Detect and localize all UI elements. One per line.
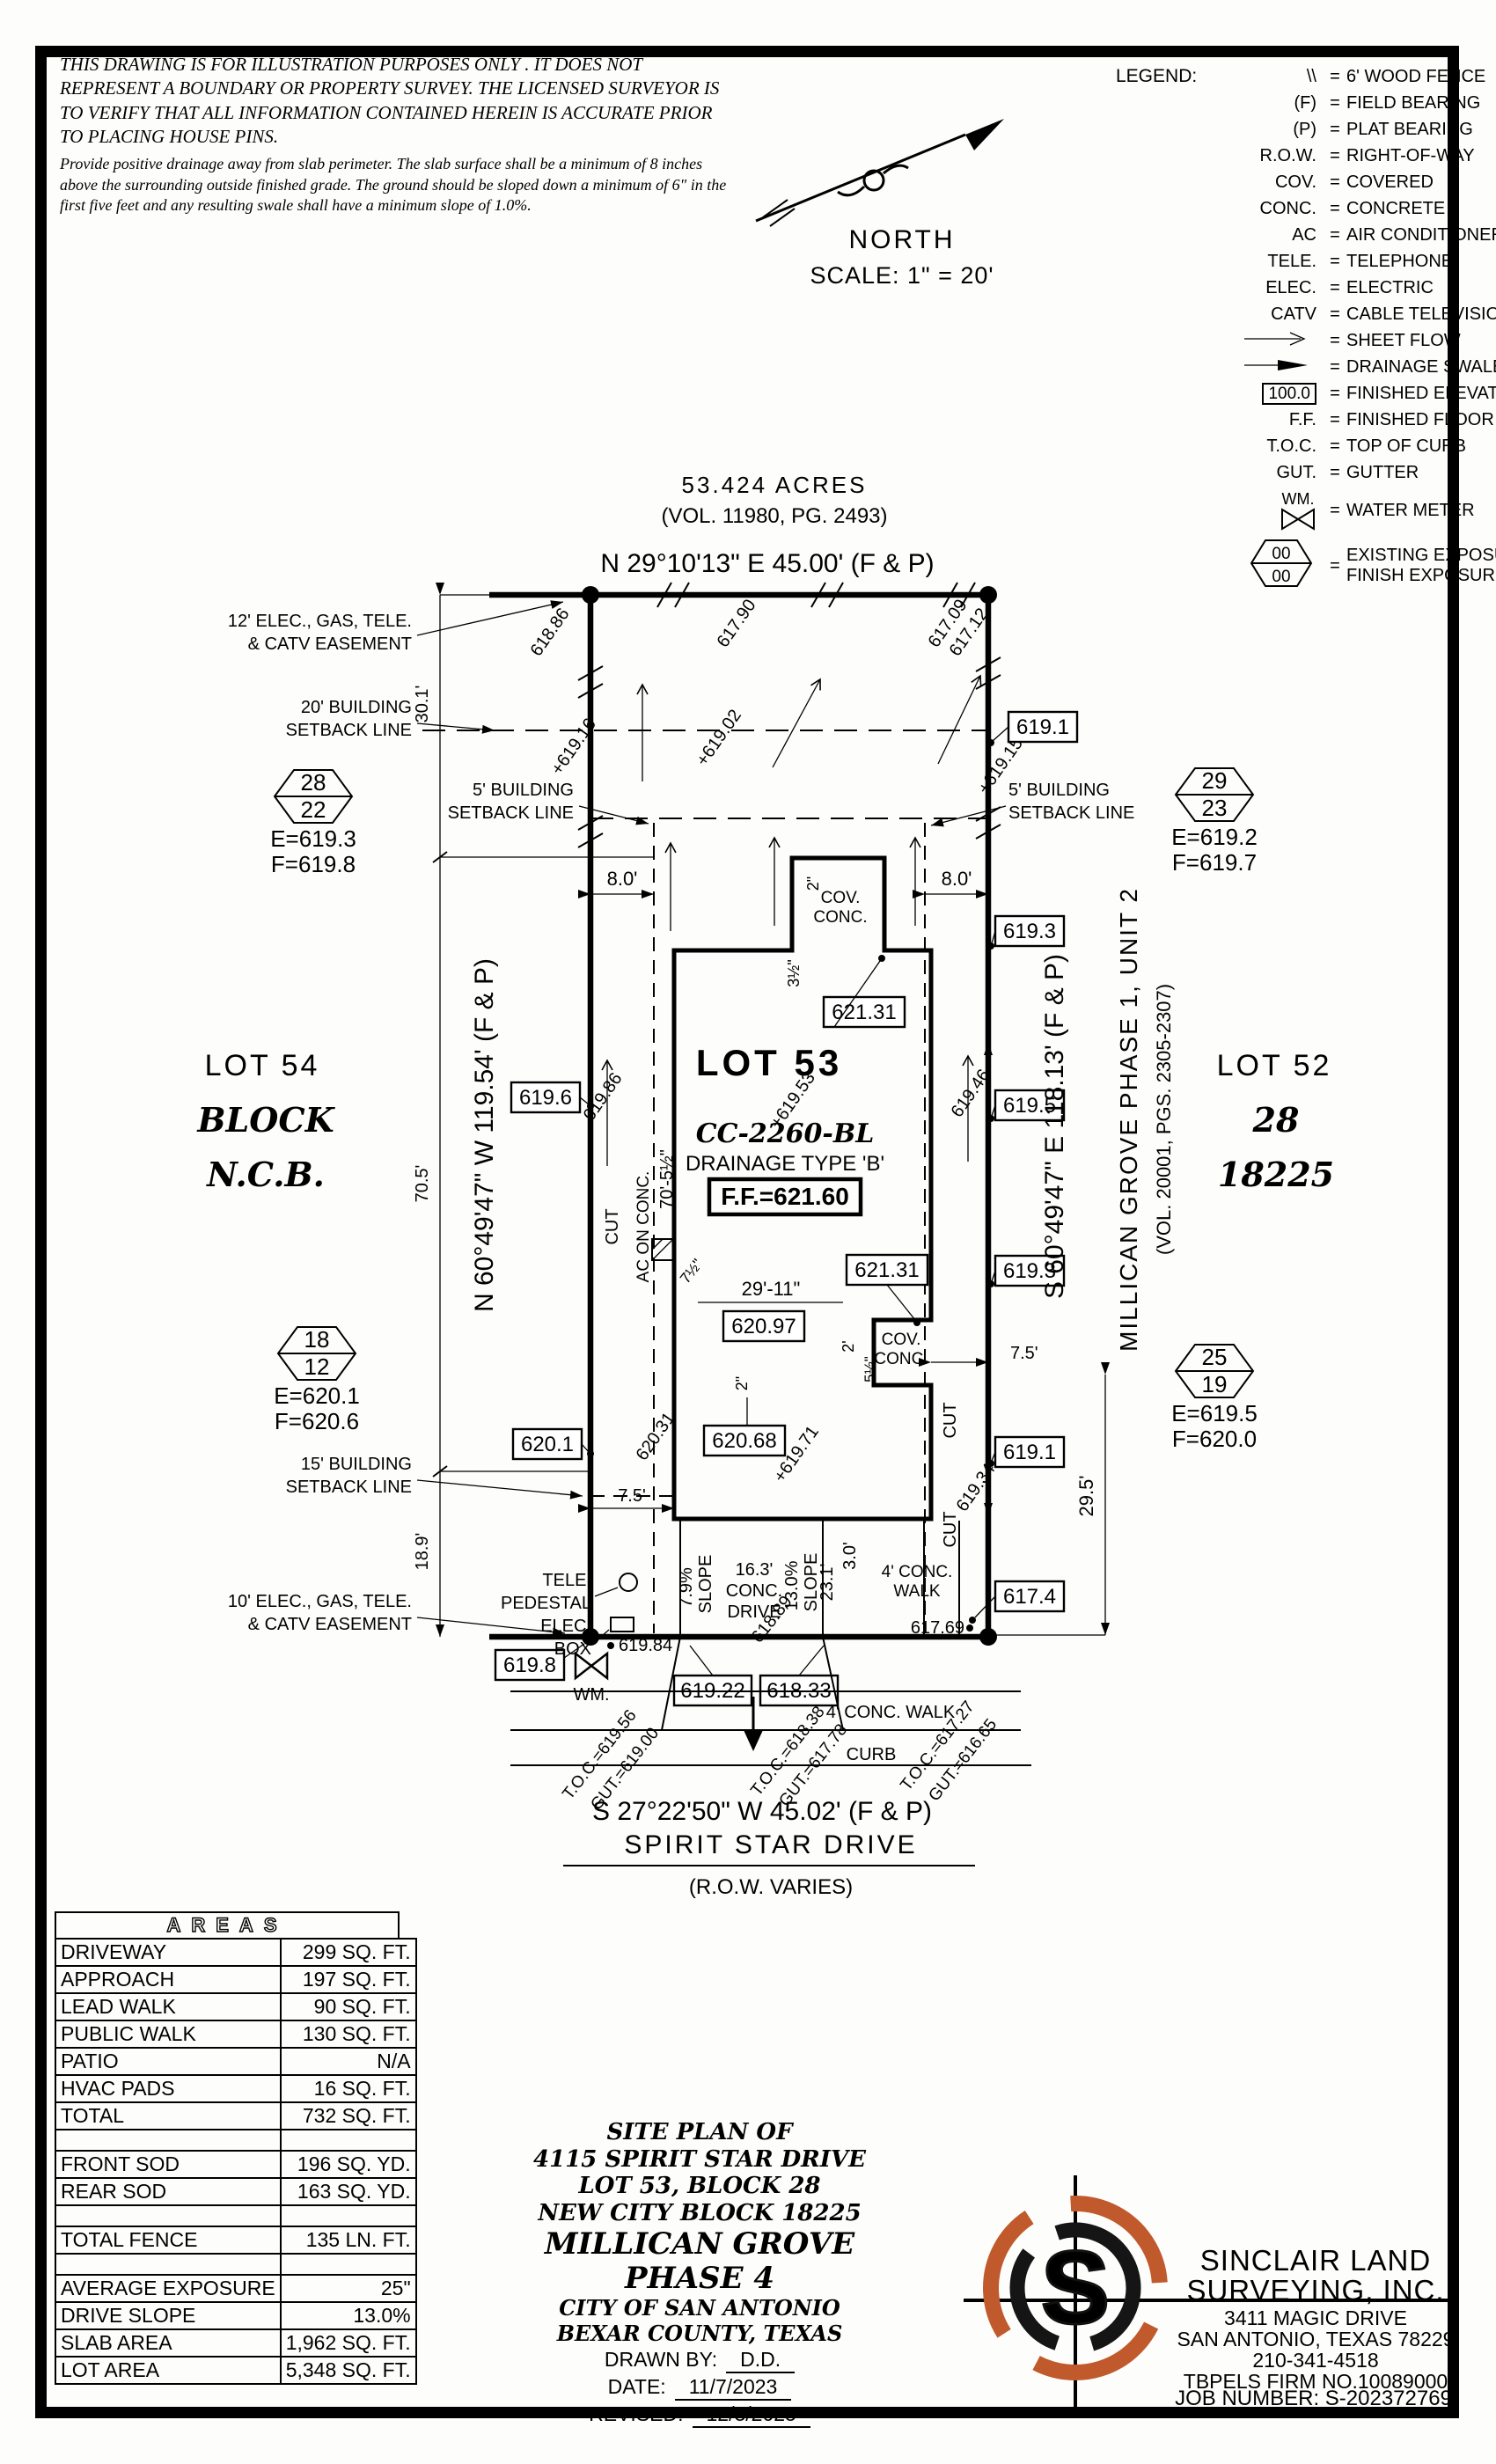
dim-3-0: 3.0' bbox=[840, 1542, 860, 1570]
area-label: SLAB AREA bbox=[55, 2329, 281, 2357]
areas-table: AREAS DRIVEWAY299 SQ. FT. APPROACH197 SQ… bbox=[55, 1911, 400, 2385]
bearing-south-label: S 27°22'50" W 45.02' (F & P) bbox=[592, 1797, 932, 1826]
dim-8-left: 8.0' bbox=[607, 868, 638, 890]
dim-7half: 7½" bbox=[677, 1256, 706, 1287]
phase1-label: MILLICAN GROVE PHASE 1, UNIT 2 bbox=[1115, 887, 1142, 1352]
table-row: TOTAL FENCE135 LN. FT. bbox=[55, 2226, 416, 2254]
dim-29-5: 29.5' bbox=[1075, 1475, 1097, 1516]
table-row: APPROACH197 SQ. FT. bbox=[55, 1966, 416, 1993]
area-label: APPROACH bbox=[55, 1966, 281, 1993]
area-label bbox=[55, 2254, 281, 2275]
hex4-existing: E=619.5 bbox=[1171, 1400, 1258, 1426]
hex-25: 25 bbox=[1202, 1344, 1228, 1370]
dim-8-right: 8.0' bbox=[942, 868, 972, 890]
area-value: 732 SQ. FT. bbox=[281, 2102, 416, 2130]
fe-619-1b: 619.1 bbox=[1003, 1441, 1056, 1464]
covered-conc-top-1: COV. bbox=[821, 889, 861, 907]
revised-label: REVISED: bbox=[589, 2402, 683, 2428]
table-row-blank bbox=[55, 2130, 416, 2151]
street-name-label: SPIRIT STAR DRIVE bbox=[624, 1830, 917, 1859]
dim-2in-top: 2" bbox=[804, 876, 822, 891]
area-value: 135 LN. FT. bbox=[281, 2226, 416, 2254]
table-row: AVERAGE EXPOSURE25" bbox=[55, 2275, 416, 2302]
setback-5-left-label-1: 5' BUILDING bbox=[473, 781, 574, 800]
title-line-2: 4115 SPIRIT STAR DRIVE bbox=[506, 2146, 893, 2174]
cut-label-3: CUT bbox=[941, 1511, 960, 1547]
dim-3half: 3½" bbox=[785, 959, 803, 986]
walk-right-label-1: 4' CONC. bbox=[882, 1563, 953, 1581]
covered-conc-top-2: CONC. bbox=[813, 908, 867, 927]
dim-70-5half: 70'-5½" bbox=[657, 1149, 677, 1209]
bearing-north-label: N 29°10'13" E 45.00' (F & P) bbox=[600, 549, 934, 578]
firm-name-line-2: SURVEYING, INC. bbox=[1170, 2276, 1461, 2306]
table-row-blank bbox=[55, 2254, 416, 2275]
fe-619-6: 619.6 bbox=[519, 1086, 572, 1110]
elev-617-69: 617.69 bbox=[911, 1618, 964, 1638]
elev-619-84: 619.84 bbox=[619, 1636, 672, 1655]
cut-label-2: CUT bbox=[941, 1402, 960, 1438]
hex-22: 22 bbox=[301, 796, 326, 823]
subdivision-name: MILLICAN GROVE bbox=[506, 2227, 893, 2262]
logo-letter: S bbox=[1041, 2230, 1111, 2346]
firm-name-line-1: SINCLAIR LAND bbox=[1170, 2246, 1461, 2276]
area-label: AVERAGE EXPOSURE bbox=[55, 2275, 281, 2302]
bearing-west-label: N 60°49'47" W 119.54' (F & P) bbox=[470, 958, 499, 1312]
table-row-blank bbox=[55, 2205, 416, 2226]
hex-23: 23 bbox=[1202, 795, 1228, 821]
table-row: FRONT SOD196 SQ. YD. bbox=[55, 2151, 416, 2178]
dim-7-5-right: 7.5' bbox=[1010, 1344, 1038, 1363]
lot-52-block: 28 bbox=[1252, 1100, 1300, 1140]
area-value: 1,962 SQ. FT. bbox=[281, 2329, 416, 2357]
elev-619-86: 619.86 bbox=[580, 1069, 627, 1125]
job-number: JOB NUMBER: S-202372769 bbox=[1162, 2387, 1465, 2411]
dim-30-1: 30.1' bbox=[413, 686, 432, 723]
hex2-existing: E=619.2 bbox=[1171, 824, 1258, 850]
revised-row: REVISED:12/3/2025 bbox=[506, 2402, 893, 2428]
area-label: FRONT SOD bbox=[55, 2151, 281, 2178]
conc-drive-label-2: CONC. bbox=[726, 1581, 782, 1601]
area-label: TOTAL bbox=[55, 2102, 281, 2130]
hex-19: 19 bbox=[1202, 1371, 1228, 1397]
date-value: 11/7/2023 bbox=[675, 2375, 792, 2401]
dim-5half: 5½" bbox=[862, 1356, 878, 1382]
row-varies-label: (R.O.W. VARIES) bbox=[689, 1875, 853, 1899]
city-label: CITY OF SAN ANTONIO bbox=[506, 2296, 893, 2321]
firm-street: 3411 MAGIC DRIVE bbox=[1170, 2307, 1461, 2328]
table-row: PATION/A bbox=[55, 2048, 416, 2075]
covered-conc-right-1: COV. bbox=[882, 1331, 921, 1349]
table-row: REAR SOD163 SQ. YD. bbox=[55, 2178, 416, 2205]
area-label: LEAD WALK bbox=[55, 1993, 281, 2020]
water-meter-symbol bbox=[576, 1654, 607, 1678]
hex3-existing: E=620.1 bbox=[274, 1382, 360, 1409]
walk-right-label-2: WALK bbox=[893, 1582, 940, 1601]
fe-621-31b: 621.31 bbox=[854, 1258, 919, 1282]
dim-7-5-left: 7.5' bbox=[618, 1486, 646, 1506]
area-value: 197 SQ. FT. bbox=[281, 1966, 416, 1993]
lot-54-block: BLOCK bbox=[196, 1100, 335, 1140]
area-value: 16 SQ. FT. bbox=[281, 2075, 416, 2102]
setback-5-right-label-2: SETBACK LINE bbox=[1008, 803, 1134, 823]
hex2-finish: F=619.7 bbox=[1172, 849, 1257, 876]
hex-12: 12 bbox=[304, 1353, 330, 1380]
cc-number-label: CC-2260-BL bbox=[696, 1118, 875, 1149]
area-label: DRIVE SLOPE bbox=[55, 2302, 281, 2329]
adjacent-lot-markers: 2822 E=619.3 F=619.8 2923 E=619.2 F=619.… bbox=[270, 767, 1258, 1452]
areas-title: AREAS bbox=[55, 1911, 400, 1938]
area-value: 5,348 SQ. FT. bbox=[281, 2357, 416, 2384]
conc-drive-label-1: 16.3' bbox=[736, 1560, 774, 1580]
subdivision-phase: PHASE 4 bbox=[506, 2262, 893, 2296]
dim-29-11: 29'-11" bbox=[742, 1278, 801, 1300]
area-label: DRIVEWAY bbox=[55, 1939, 281, 1966]
slope-word-1: SLOPE bbox=[696, 1555, 715, 1614]
tele-pedestal-label-1: TELE. bbox=[542, 1571, 591, 1590]
area-value: N/A bbox=[281, 2048, 416, 2075]
cut-label-1: CUT bbox=[603, 1208, 622, 1244]
finished-floor-label: F.F.=621.60 bbox=[721, 1183, 849, 1210]
area-value bbox=[281, 2254, 416, 2275]
fe-620-68: 620.68 bbox=[712, 1429, 776, 1453]
setback-15-label-2: SETBACK LINE bbox=[286, 1478, 412, 1497]
adjacent-lot-labels: LOT 54 BLOCK N.C.B. LOT 52 28 18225 S 60… bbox=[196, 887, 1334, 1635]
fe-620-97: 620.97 bbox=[731, 1315, 796, 1338]
setback-20-label-1: 20' BUILDING bbox=[301, 698, 412, 717]
easement-12-label-1: 12' ELEC., GAS, TELE. bbox=[228, 612, 412, 631]
sinclair-logo: S bbox=[970, 2182, 1181, 2394]
area-value: 13.0% bbox=[281, 2302, 416, 2329]
setback-15-label-1: 15' BUILDING bbox=[301, 1455, 412, 1474]
fe-617-4: 617.4 bbox=[1003, 1585, 1056, 1609]
hex4-finish: F=620.0 bbox=[1172, 1426, 1257, 1452]
area-value bbox=[281, 2130, 416, 2151]
area-value: 130 SQ. FT. bbox=[281, 2020, 416, 2048]
setback-5-left-label-2: SETBACK LINE bbox=[448, 803, 574, 823]
hex1-finish: F=619.8 bbox=[271, 851, 356, 877]
tele-pedestal-label-2: PEDESTAL bbox=[501, 1594, 591, 1613]
dim-18-9: 18.9' bbox=[413, 1533, 432, 1571]
bearing-east-label: S 60°49'47" E 118.13' (F & P) bbox=[1040, 954, 1069, 1299]
table-row: TOTAL732 SQ. FT. bbox=[55, 2102, 416, 2130]
setback-5-right-label-1: 5' BUILDING bbox=[1008, 781, 1110, 800]
site-plan-sheet: THIS DRAWING IS FOR ILLUSTRATION PURPOSE… bbox=[0, 0, 1496, 2464]
dim-23-1: 23.1' bbox=[818, 1564, 837, 1602]
elec-box-label-2: BOX bbox=[554, 1639, 591, 1659]
drawn-by-label: DRAWN BY: bbox=[605, 2348, 717, 2373]
elev-619-34: 619.34 bbox=[953, 1460, 1000, 1515]
hex-28: 28 bbox=[301, 769, 326, 796]
acreage-volume-label: (VOL. 11980, PG. 2493) bbox=[661, 504, 887, 528]
drawn-by-value: D.D. bbox=[726, 2348, 795, 2373]
area-value: 163 SQ. YD. bbox=[281, 2178, 416, 2205]
easement-12-label-2: & CATV EASEMENT bbox=[248, 634, 412, 654]
easement-10-label-2: & CATV EASEMENT bbox=[248, 1615, 412, 1634]
lot-54-ncb: N.C.B. bbox=[206, 1155, 325, 1194]
drawn-by-row: DRAWN BY:D.D. bbox=[506, 2348, 893, 2373]
drainage-type-label: DRAINAGE TYPE 'B' bbox=[686, 1152, 884, 1176]
parent-tract-labels: 53.424 ACRES (VOL. 11980, PG. 2493) N 29… bbox=[600, 472, 934, 578]
table-row: DRIVEWAY299 SQ. FT. bbox=[55, 1939, 416, 1966]
dim-2ft: 2' bbox=[840, 1340, 857, 1352]
area-label bbox=[55, 2205, 281, 2226]
walk-bottom-label: 4' CONC. WALK bbox=[826, 1703, 956, 1722]
elev-617-90: 617.90 bbox=[714, 596, 760, 651]
area-value: 90 SQ. FT. bbox=[281, 1993, 416, 2020]
hex1-existing: E=619.3 bbox=[270, 825, 356, 852]
title-line-1: SITE PLAN OF bbox=[506, 2119, 893, 2146]
elev-619-02: +619.02 bbox=[693, 706, 745, 769]
slope-7-9: 7.9% bbox=[677, 1567, 696, 1608]
hex-18: 18 bbox=[304, 1326, 330, 1353]
elev-618-86: 618.86 bbox=[527, 605, 574, 660]
table-row: PUBLIC WALK130 SQ. FT. bbox=[55, 2020, 416, 2048]
slope-13-0: 13.0% bbox=[782, 1560, 802, 1610]
firm-phone: 210-341-4518 bbox=[1170, 2350, 1461, 2371]
areas-grid: DRIVEWAY299 SQ. FT. APPROACH197 SQ. FT. … bbox=[55, 1938, 417, 2385]
lot-52-label: LOT 52 bbox=[1217, 1049, 1332, 1082]
phase1-volume-label: (VOL. 20001, PGS. 2305-2307) bbox=[1153, 984, 1175, 1255]
area-label: LOT AREA bbox=[55, 2357, 281, 2384]
table-row: HVAC PADS16 SQ. FT. bbox=[55, 2075, 416, 2102]
elec-box-label-1: ELEC. bbox=[540, 1617, 591, 1636]
elec-box-symbol bbox=[611, 1617, 634, 1632]
dim-70-5: 70.5' bbox=[413, 1165, 432, 1203]
date-row: DATE:11/7/2023 bbox=[506, 2375, 893, 2401]
county-label: BEXAR COUNTY, TEXAS bbox=[506, 2321, 893, 2347]
acreage-label: 53.424 ACRES bbox=[682, 472, 868, 498]
area-label: TOTAL FENCE bbox=[55, 2226, 281, 2254]
date-label: DATE: bbox=[608, 2375, 666, 2401]
table-row: LOT AREA5,348 SQ. FT. bbox=[55, 2357, 416, 2384]
area-label: PATIO bbox=[55, 2048, 281, 2075]
area-label: REAR SOD bbox=[55, 2178, 281, 2205]
lot-52-ncb: 18225 bbox=[1218, 1155, 1334, 1194]
fe-619-8: 619.8 bbox=[503, 1654, 556, 1677]
title-line-3: LOT 53, BLOCK 28 bbox=[506, 2173, 893, 2200]
lot-54-label: LOT 54 bbox=[205, 1049, 320, 1082]
ac-on-conc-label: AC ON CONC. bbox=[634, 1171, 653, 1283]
fe-619-3a: 619.3 bbox=[1003, 920, 1056, 943]
fe-620-1: 620.1 bbox=[521, 1433, 574, 1456]
firm-address: 3411 MAGIC DRIVE SAN ANTONIO, TEXAS 7822… bbox=[1170, 2307, 1461, 2393]
dim-2in-house: 2" bbox=[733, 1376, 751, 1390]
setback-20-label-2: SETBACK LINE bbox=[286, 721, 412, 740]
table-row: LEAD WALK90 SQ. FT. bbox=[55, 1993, 416, 2020]
fe-619-1a: 619.1 bbox=[1016, 715, 1069, 739]
firm-city: SAN ANTONIO, TEXAS 78229 bbox=[1170, 2328, 1461, 2350]
covered-conc-right-2: CONC. bbox=[874, 1350, 928, 1368]
conc-drive-label-3: DRIVE bbox=[727, 1602, 781, 1622]
easement-10-label-1: 10' ELEC., GAS, TELE. bbox=[228, 1592, 412, 1611]
curb-label: CURB bbox=[847, 1745, 897, 1764]
firm-name: SINCLAIR LAND SURVEYING, INC. bbox=[1170, 2246, 1461, 2305]
revised-value: 12/3/2025 bbox=[693, 2402, 810, 2428]
lot-53-label: LOT 53 bbox=[696, 1042, 842, 1083]
table-row: SLAB AREA1,962 SQ. FT. bbox=[55, 2329, 416, 2357]
fe-621-31a: 621.31 bbox=[832, 1001, 896, 1024]
wm-label: WM. bbox=[573, 1685, 609, 1705]
hex-29: 29 bbox=[1202, 767, 1228, 794]
area-label: HVAC PADS bbox=[55, 2075, 281, 2102]
area-value: 25" bbox=[281, 2275, 416, 2302]
area-value: 299 SQ. FT. bbox=[281, 1939, 416, 1966]
area-label bbox=[55, 2130, 281, 2151]
left-dimension-chain: 30.1' 70.5' 18.9' N 60°49'47" W 119.54' … bbox=[413, 595, 654, 1637]
title-line-4: NEW CITY BLOCK 18225 bbox=[506, 2200, 893, 2227]
area-label: PUBLIC WALK bbox=[55, 2020, 281, 2048]
title-block: SITE PLAN OF 4115 SPIRIT STAR DRIVE LOT … bbox=[506, 2119, 893, 2428]
tele-pedestal-symbol bbox=[620, 1573, 637, 1591]
hex3-finish: F=620.6 bbox=[275, 1408, 359, 1434]
table-row: DRIVE SLOPE13.0% bbox=[55, 2302, 416, 2329]
area-value: 196 SQ. YD. bbox=[281, 2151, 416, 2178]
area-value bbox=[281, 2205, 416, 2226]
